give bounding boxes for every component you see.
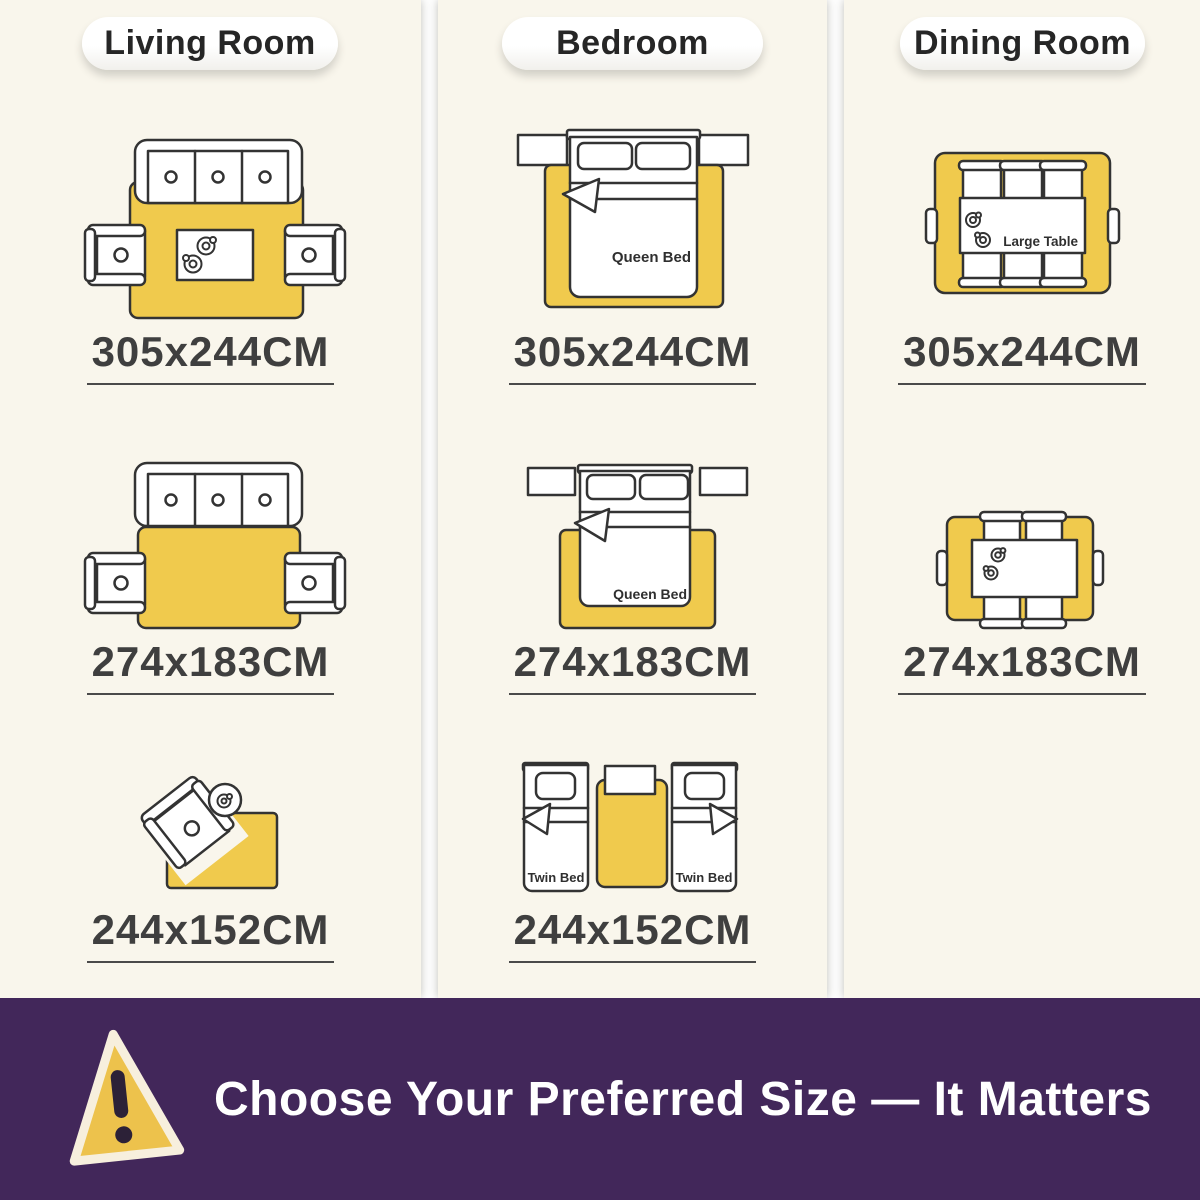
queen-bed: Queen Bed (563, 130, 700, 297)
living-room-medium-rug-illustration (85, 460, 345, 630)
column-title-living-room: Living Room (82, 17, 338, 70)
size-label: 274x183CM (438, 638, 827, 695)
armchair-left (85, 553, 145, 613)
queen-bed: Queen Bed (575, 465, 692, 606)
coffee-table (177, 230, 253, 280)
bedroom-small-rug-illustration: Twin Bed Twin Bed (523, 762, 737, 895)
rug-shape (597, 780, 667, 887)
nightstand-right (700, 468, 747, 495)
twin-bed-left: Twin Bed (523, 763, 588, 891)
column-title-bedroom: Bedroom (502, 17, 763, 70)
bottom-banner: Choose Your Preferred Size — It Matters (0, 998, 1200, 1200)
dining-table: Large Table (960, 198, 1085, 253)
bed-label: Queen Bed (612, 249, 691, 266)
table-label: Large Table (1003, 234, 1078, 249)
bed-label: Queen Bed (613, 586, 687, 602)
column-title-dining-room: Dining Room (900, 17, 1145, 70)
size-label: 305x244CM (0, 328, 421, 385)
rug-size-guide: Living Room (0, 0, 1200, 1200)
ottoman (605, 766, 655, 794)
side-table (209, 784, 241, 816)
end-chair-left (926, 209, 937, 243)
end-chair-right (1108, 209, 1119, 243)
armchair-right (285, 225, 345, 285)
dining-room-large-rug-illustration: Large Table (925, 150, 1120, 298)
nightstand-right (699, 135, 748, 165)
banner-text: Choose Your Preferred Size — It Matters (214, 1072, 1152, 1127)
bed-label: Twin Bed (528, 870, 585, 885)
warning-triangle-icon (58, 1024, 188, 1174)
end-chair-right (1093, 551, 1103, 585)
column-title-label: Bedroom (556, 24, 709, 63)
size-label: 244x152CM (438, 906, 827, 963)
twin-bed-right: Twin Bed (672, 763, 737, 891)
bed-label: Twin Bed (676, 870, 733, 885)
end-chair-left (937, 551, 947, 585)
bedroom-large-rug-illustration: Queen Bed (515, 128, 750, 310)
dining-table (972, 540, 1077, 597)
bedroom-medium-rug-illustration: Queen Bed (525, 462, 750, 630)
column-dining-room: Dining Room Large Table (844, 0, 1200, 998)
armchair-right (285, 553, 345, 613)
column-living-room: Living Room (0, 0, 421, 998)
column-bedroom: Bedroom Queen Bed 305x244CM (438, 0, 827, 998)
size-label: 244x152CM (0, 906, 421, 963)
size-label: 305x244CM (438, 328, 827, 385)
nightstand-left (518, 135, 567, 165)
size-label: 305x244CM (844, 328, 1200, 385)
living-room-large-rug-illustration (85, 128, 345, 323)
size-label: 274x183CM (0, 638, 421, 695)
column-title-label: Dining Room (914, 24, 1131, 63)
size-label: 274x183CM (844, 638, 1200, 695)
sofa (135, 140, 302, 203)
column-title-label: Living Room (104, 24, 315, 63)
dining-room-medium-rug-illustration (935, 505, 1105, 632)
armchair-left (85, 225, 145, 285)
living-room-small-rug-illustration (135, 772, 285, 892)
rug-shape (138, 527, 300, 628)
sofa (135, 463, 302, 526)
nightstand-left (528, 468, 575, 495)
